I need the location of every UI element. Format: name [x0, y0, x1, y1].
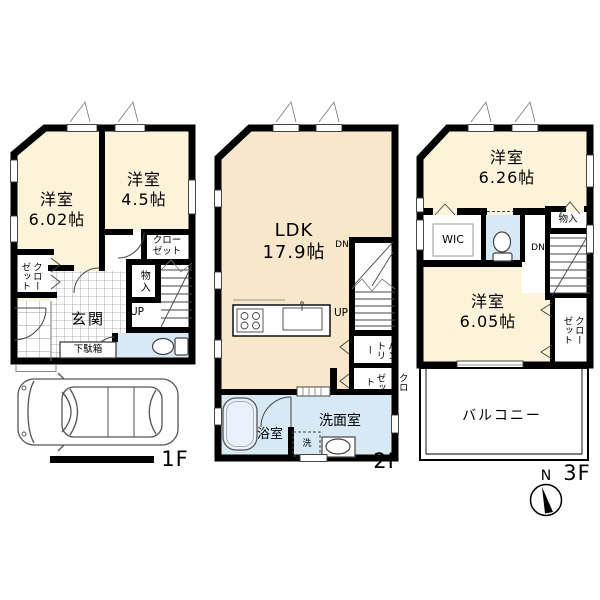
f3-storage-label: 物入 — [548, 215, 588, 226]
f1-storage-label: 物入 — [137, 267, 149, 297]
f2-dn-label: DN — [330, 240, 354, 251]
f1-entrance-label: 玄関 — [56, 310, 120, 328]
f1-room1-label: 洋室 6.02帖 — [14, 190, 100, 229]
f3-floor-label: 3F — [558, 461, 596, 487]
f3-room1-label: 洋室 6.26帖 — [455, 148, 559, 187]
f1-room2-label: 洋室 4.5帖 — [98, 170, 190, 209]
f1-shoebox-label: 下駄箱 — [60, 345, 116, 356]
f3-closet-label: クロー ゼット — [560, 310, 583, 350]
f2-floor-label: 2F — [368, 449, 406, 475]
f1-closet-left-label: クロー ゼット — [18, 257, 41, 295]
f1-floor-label: 1F — [156, 447, 194, 473]
f1-room1-name: 洋室 — [14, 190, 100, 210]
f3-room2-size: 6.05帖 — [436, 312, 540, 332]
f3-room1-size: 6.26帖 — [455, 168, 559, 188]
f3-balcony-label: バルコニー — [440, 408, 564, 425]
f3-wic-label: WIC — [432, 233, 474, 246]
f3-room2-name: 洋室 — [436, 292, 540, 312]
f3-room1-name: 洋室 — [455, 148, 559, 168]
f1-room2-name: 洋室 — [98, 170, 190, 190]
f1-room1-size: 6.02帖 — [14, 210, 100, 230]
f2-laundry-label: 洗 — [297, 439, 317, 450]
f2-ldk-name: LDK — [238, 220, 350, 242]
f3-dn-label: DN — [526, 243, 550, 254]
f2-pantry-label: パン トリー — [362, 336, 396, 364]
compass-north-label: N — [534, 468, 558, 485]
f2-bathroom-label: 浴室 — [240, 427, 300, 443]
f1-closet-right-label: クロー ゼット — [144, 236, 190, 258]
f2-washroom-label: 洗面室 — [300, 413, 380, 430]
f3-room2-label: 洋室 6.05帖 — [436, 292, 540, 331]
f2-up-label: UP — [328, 307, 354, 320]
f2-closet-label: クロー ゼット — [362, 369, 407, 395]
f1-room2-size: 4.5帖 — [98, 190, 190, 210]
floorplan-page: 洋室 6.02帖 洋室 4.5帖 クロー ゼット クロー ゼット 物入 玄関 下… — [0, 0, 600, 600]
f1-up-label: UP — [124, 306, 150, 319]
labels-layer: 洋室 6.02帖 洋室 4.5帖 クロー ゼット クロー ゼット 物入 玄関 下… — [0, 0, 600, 600]
